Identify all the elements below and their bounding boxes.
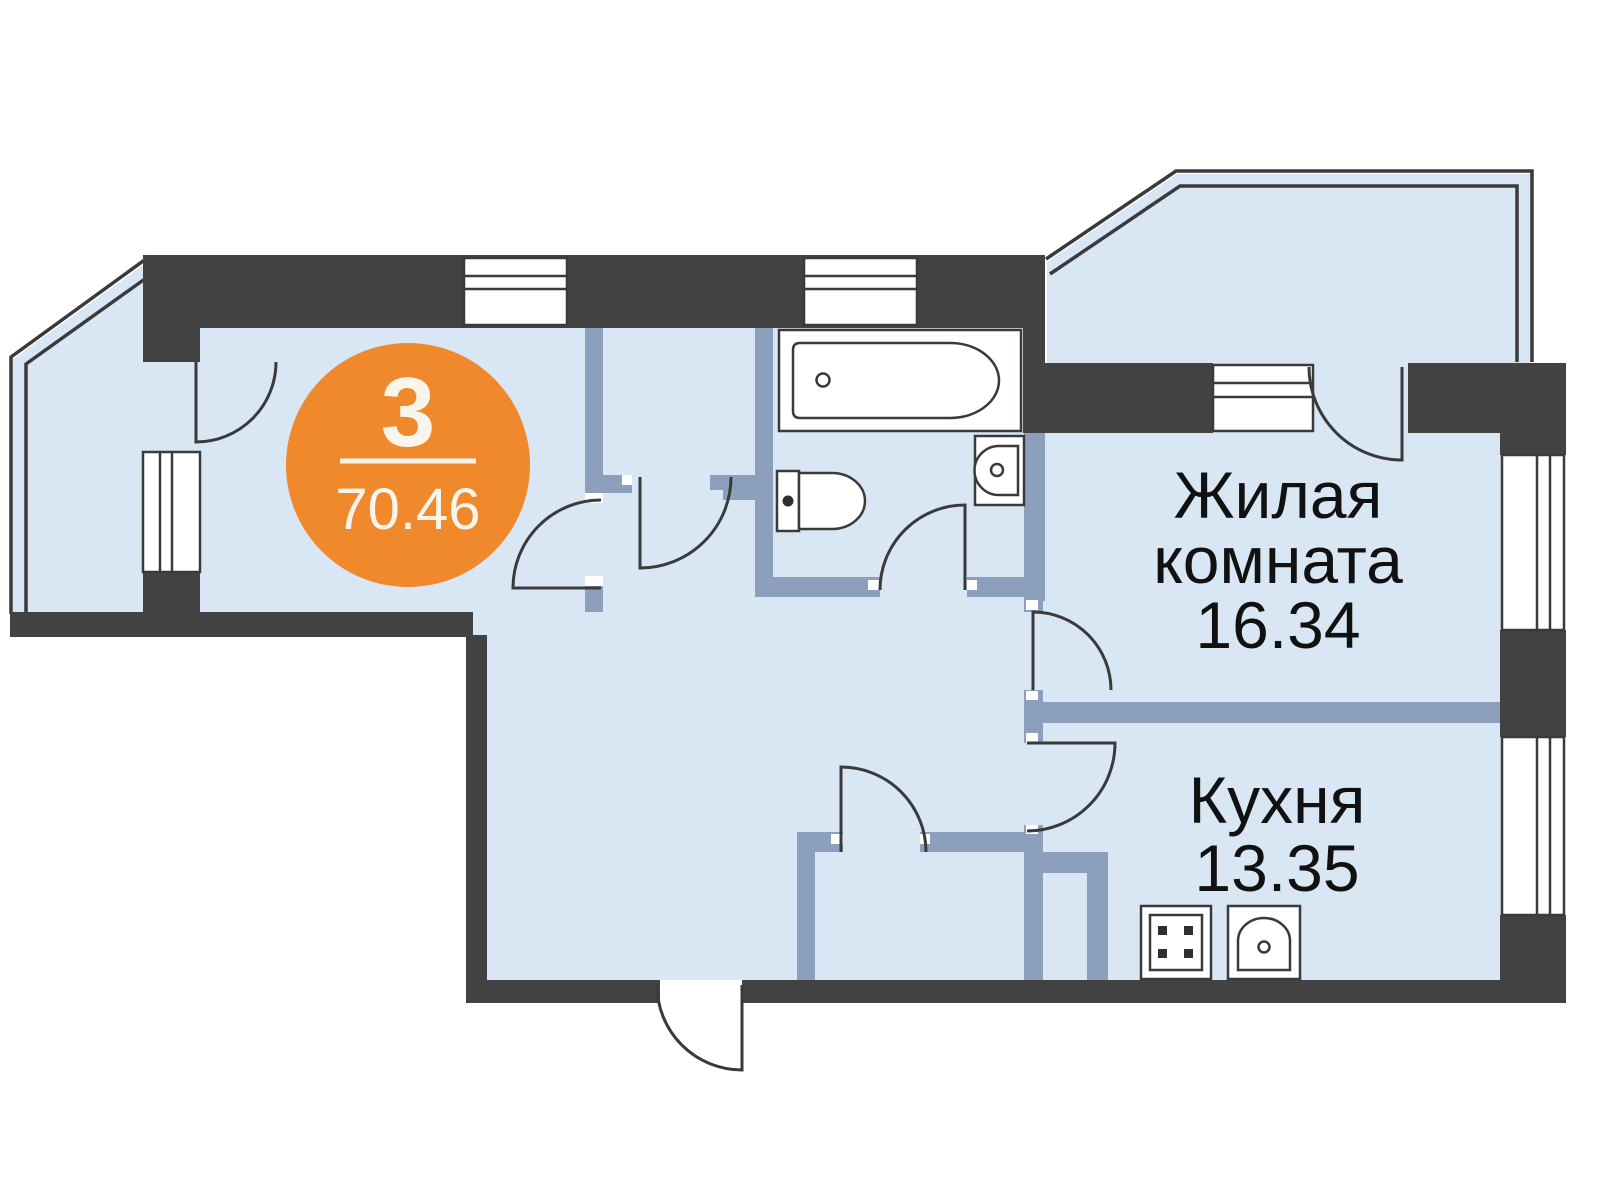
window-top-1 [464,258,567,325]
door-arc-entrance [657,985,742,1070]
bathtub-icon [779,330,1021,431]
floor-plan: 3 70.46 Жилая комната 16.34 Кухня 13.35 [0,0,1600,1200]
window-kitchen-right [1502,737,1564,915]
window-bedroom-left [143,452,200,572]
window-living-top [1213,365,1313,431]
living-room-area: 16.34 [1195,588,1360,662]
washbasin-icon [974,436,1024,505]
window-top-2 [804,258,917,325]
left-balcony-floor [12,260,150,614]
living-room-label-line2: комната [1153,523,1403,597]
living-room-label-line1: Жилая [1174,458,1383,532]
floor-plan-svg: 3 70.46 Жилая комната 16.34 Кухня 13.35 [0,0,1600,1200]
window-living-right [1502,455,1564,630]
kitchen-label: Кухня [1189,763,1366,837]
badge-rooms-count: 3 [381,357,436,467]
right-balcony-floor [1047,174,1531,363]
stove-icon [1141,906,1211,979]
area-badge: 3 70.46 [286,343,530,587]
badge-total-area: 70.46 [335,477,480,542]
kitchen-sink-icon [1228,906,1300,979]
toilet-icon [777,471,865,531]
kitchen-area: 13.35 [1194,831,1359,905]
